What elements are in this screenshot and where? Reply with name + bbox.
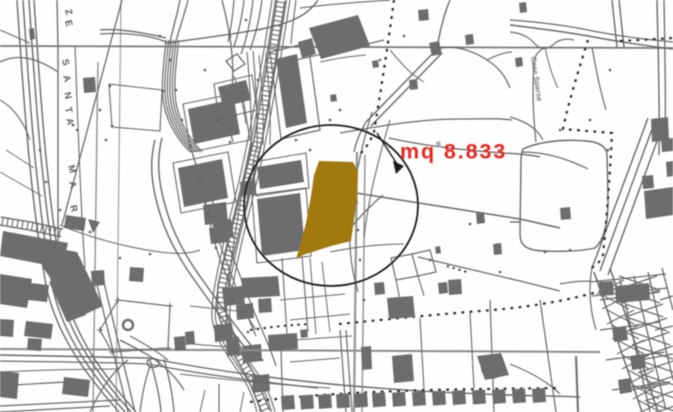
svg-text:mq 8.833: mq 8.833 [400,140,507,164]
